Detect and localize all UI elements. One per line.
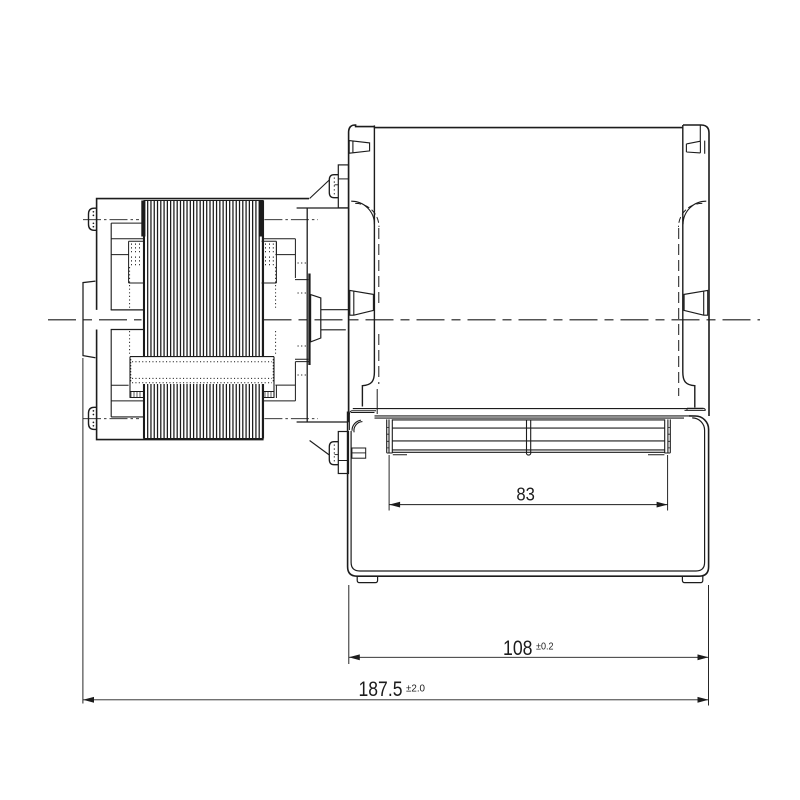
svg-text:83: 83 [516,484,535,505]
svg-text:108: 108 [503,637,533,660]
svg-text:±0.2: ±0.2 [536,641,554,653]
svg-text:187.5: 187.5 [359,678,403,701]
svg-text:±2.0: ±2.0 [406,683,425,695]
